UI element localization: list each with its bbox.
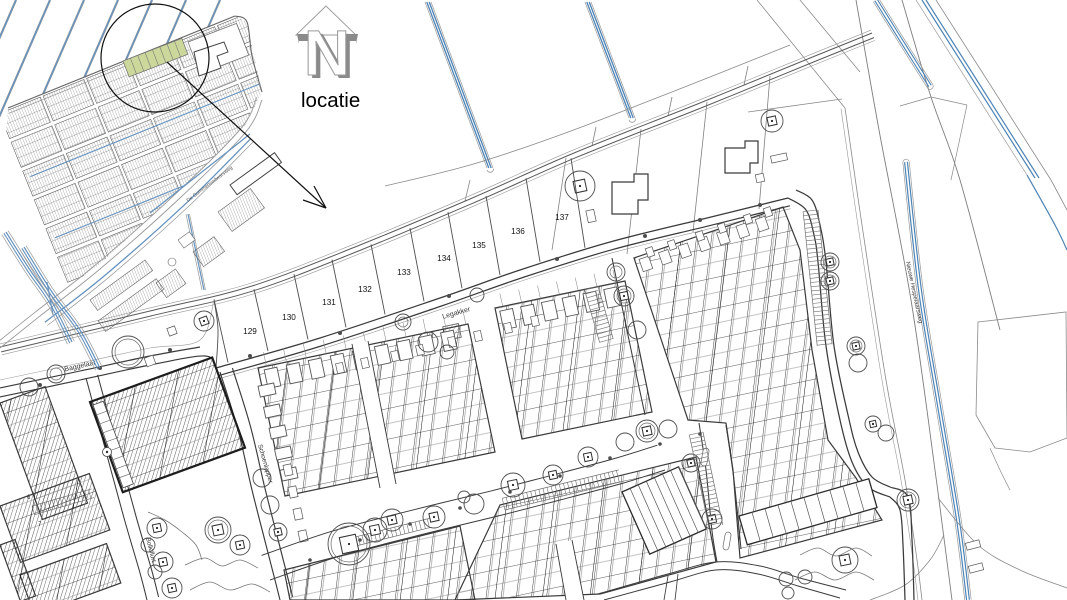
svg-text:locatie: locatie <box>301 89 360 112</box>
svg-text:137: 137 <box>555 213 569 222</box>
svg-text:N: N <box>304 17 350 89</box>
svg-text:133: 133 <box>397 268 411 277</box>
svg-text:131: 131 <box>322 298 336 307</box>
svg-text:136: 136 <box>511 227 525 236</box>
svg-text:130: 130 <box>282 313 296 322</box>
svg-text:134: 134 <box>437 254 451 263</box>
svg-text:135: 135 <box>472 241 486 250</box>
svg-text:129: 129 <box>243 327 257 336</box>
svg-text:132: 132 <box>358 285 372 294</box>
